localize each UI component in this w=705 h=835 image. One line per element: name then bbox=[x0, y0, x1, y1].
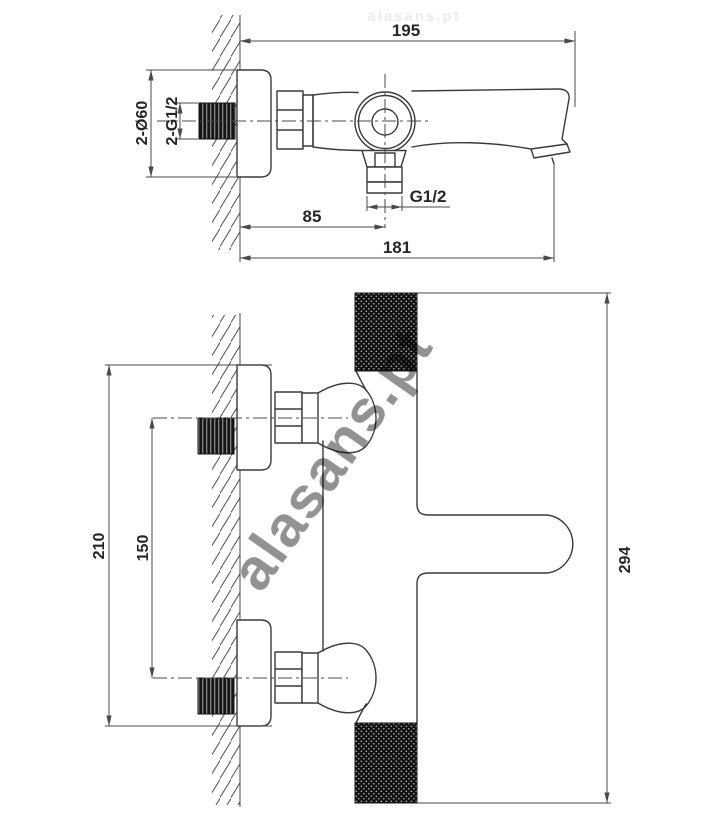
wall-thread-fitting-top bbox=[198, 418, 234, 454]
hex-union-nut bbox=[277, 91, 303, 149]
dim-label-outlet-thread: G1/2 bbox=[410, 187, 447, 206]
knurled-handle-bottom bbox=[355, 723, 417, 803]
dim-label-wall-thread: 2-G1/2 bbox=[164, 96, 181, 145]
bath-mixer-dimension-drawing: 195 2-Ø60 2-G1/2 G1/2 85 181 bbox=[0, 0, 705, 835]
wall-thread-fitting-bottom bbox=[198, 678, 234, 714]
dim-label-294: 294 bbox=[617, 547, 634, 574]
dim-label-escutcheon: 2-Ø60 bbox=[134, 101, 151, 146]
technical-drawing-page: 195 2-Ø60 2-G1/2 G1/2 85 181 bbox=[0, 0, 705, 835]
watermark-fragment-top: alasans.pt bbox=[367, 8, 460, 25]
dim-label-85: 85 bbox=[303, 207, 322, 226]
dim-label-150: 150 bbox=[135, 535, 152, 562]
escutcheon-plate-side bbox=[237, 70, 271, 177]
dim-label-181: 181 bbox=[383, 238, 411, 257]
escutcheon-plate-bottom bbox=[237, 620, 271, 726]
dim-label-210: 210 bbox=[91, 533, 108, 560]
